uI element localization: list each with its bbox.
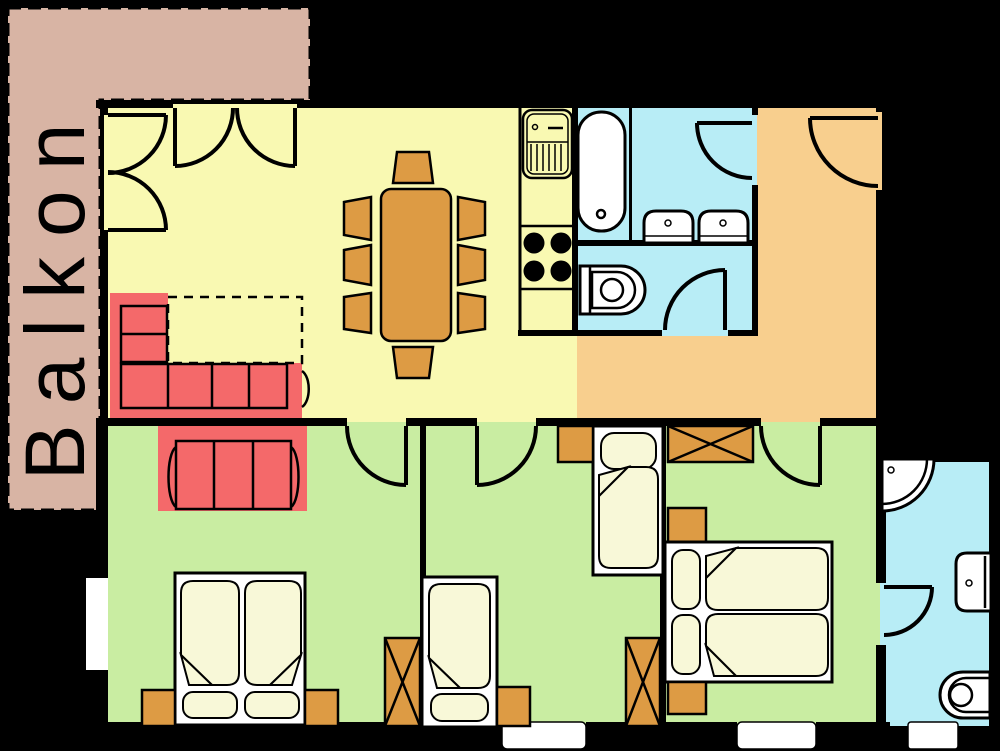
wardrobe (385, 638, 420, 726)
wardrobe (626, 638, 660, 726)
toilet-wc (580, 266, 645, 314)
single-bed-top (593, 426, 663, 575)
ensuite-toilet (940, 672, 990, 718)
dining-chair (393, 347, 433, 378)
bedroom-sofa (158, 426, 307, 511)
pillow (601, 433, 656, 469)
nightstand (668, 682, 706, 714)
washbasin-2 (699, 211, 748, 243)
nightstand (142, 690, 175, 726)
dining-chair (344, 293, 371, 333)
dining-chair (344, 197, 371, 240)
dining-chair (458, 245, 485, 285)
floor-plan: Balkon (0, 0, 1000, 751)
dining-table (381, 189, 451, 341)
nightstand (668, 508, 706, 542)
washbasin-1 (644, 211, 693, 243)
dining-chair (393, 152, 433, 183)
pillow (672, 615, 700, 674)
window-bedroom-1 (86, 578, 108, 670)
wardrobe (668, 426, 753, 462)
nightstand (558, 426, 593, 462)
double-bed (665, 542, 832, 682)
pillow (672, 550, 700, 609)
single-bed-bottom (422, 577, 497, 727)
dining-chair (458, 293, 485, 333)
kitchen-counter (520, 106, 575, 333)
ensuite-washbasin (956, 553, 991, 611)
nightstand (305, 690, 338, 726)
pillow (183, 692, 237, 718)
balcony-label: Balkon (8, 104, 102, 481)
dining-chair (458, 197, 485, 240)
double-bed (175, 573, 305, 725)
bathtub (578, 112, 625, 231)
nightstand (497, 687, 530, 726)
pillow (431, 694, 488, 721)
dining-chair (344, 245, 371, 285)
opening-ensuite (908, 722, 958, 749)
pillow (245, 692, 299, 718)
opening-bedroom-3 (737, 722, 816, 749)
hallway-floor-band (577, 333, 882, 422)
